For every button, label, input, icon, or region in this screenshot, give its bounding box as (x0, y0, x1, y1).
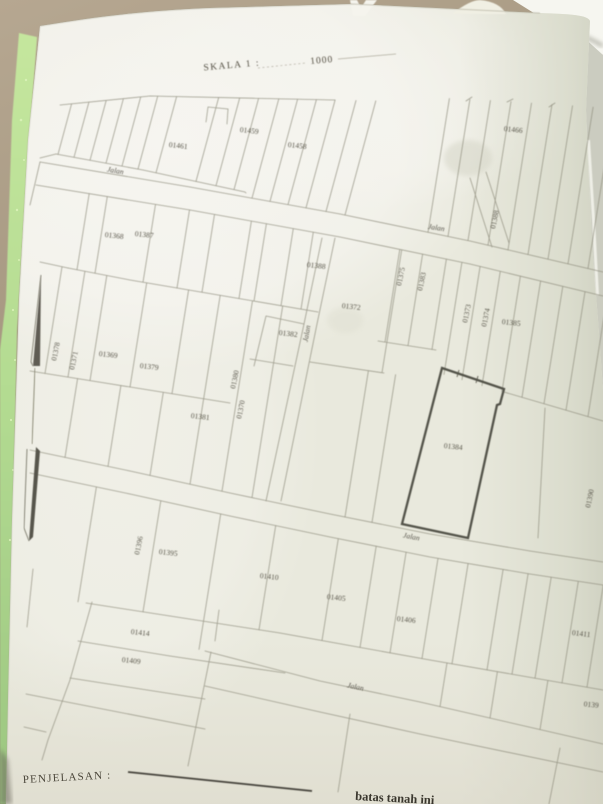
svg-text:1000: 1000 (310, 55, 334, 67)
svg-text:0139: 0139 (583, 699, 599, 710)
